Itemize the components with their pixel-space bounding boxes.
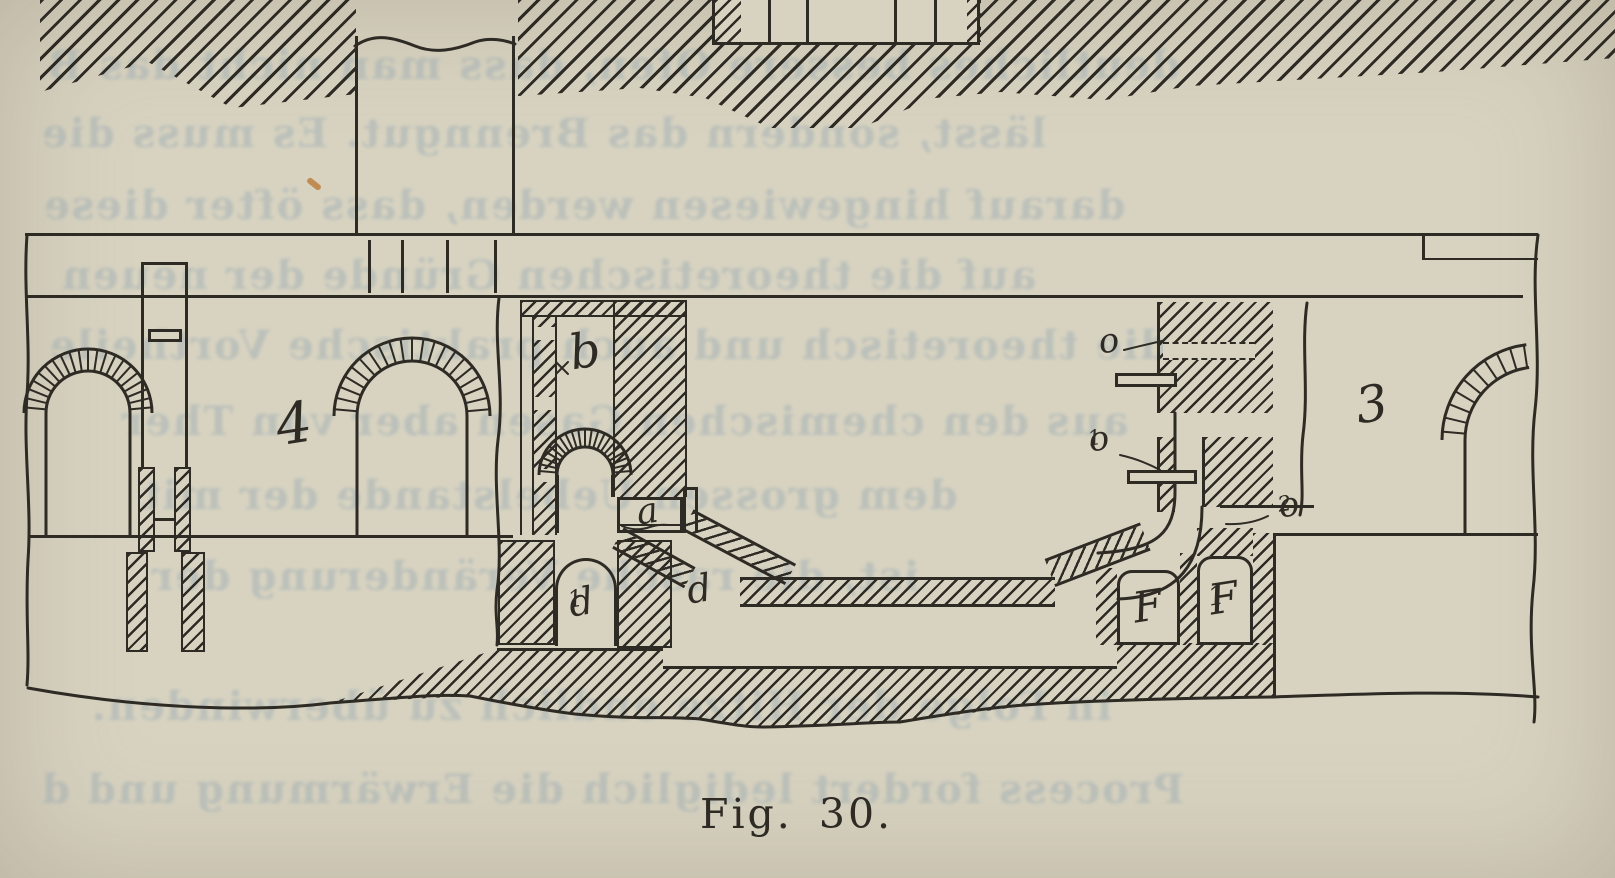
cover-block-joint [894,0,897,42]
showthrough-line: lässt, sondern das Brenngut. Es muss die [40,110,1046,157]
cover-block-hatch-left [715,0,741,42]
checker-gap [534,327,555,340]
kiln-slab-bottom-line [25,295,1523,298]
slide-wall-strip [1157,484,1175,512]
chimney-shaft [355,36,515,233]
collar-joint [446,240,449,293]
chimney-base-collar [368,240,497,293]
collar-joint [401,240,404,293]
showthrough-line: auf die theoretischen Gründe der neuen [60,252,1036,299]
slide-o2-slot-top-line [1220,505,1314,508]
b-channel-jamb [611,475,613,497]
scanned-book-page: deutliches bessere Ofen, dass man nicht … [0,0,1615,878]
label-b-tick [556,362,568,374]
label-o2-leader [1226,516,1268,524]
chamber3-floor-line [1273,533,1538,536]
chamber4-floor-line [30,535,513,538]
probe-tube-cap [141,262,188,265]
probe-tube-damper-slot [148,329,182,342]
arch-chamber3-right [1442,345,1529,533]
arch-chamber4-right [334,338,490,535]
checker-gap [534,469,555,482]
kiln-top-line [25,233,1538,236]
cover-block-joint [806,0,809,42]
figure-caption: Fig. 30. [700,790,893,838]
checker-gap [534,397,555,410]
hatch-over-f1 [1197,528,1253,556]
slide-block-lower [1202,437,1273,507]
probe-tube-lower-wall [138,467,155,552]
cover-block-joint [768,0,771,42]
left-break-line [26,235,29,685]
slide-wall-strip [1157,437,1175,470]
slide-o-slot [1163,342,1255,360]
label-o1-leader [1120,455,1160,470]
right-break-line [1531,235,1538,722]
probe-fork-prong [181,552,205,652]
probe-tube-crossbar [155,518,175,521]
cover-block-hatch-right [967,0,981,42]
probe-fork-prong [126,552,148,652]
showthrough-line: darauf hingewiesen werden, dass öfter di… [42,182,1125,229]
b-channel-jamb [557,475,559,533]
linework-overlay [0,0,1615,878]
ink-stain [306,177,322,192]
slab-step-vertical [1422,233,1425,260]
probe-tube-wall [141,262,144,469]
pier-left-of-d1 [498,540,555,645]
ground-cover-block [712,0,980,45]
slide-o-plate [1115,373,1177,387]
b-pillar-hatch [613,300,687,497]
structure-right-edge [1273,533,1276,697]
pillar-between-f-f1 [1180,553,1197,645]
slide-o1-plate [1127,470,1197,484]
chamber3-left-break-line [1300,303,1307,515]
b-checker-column [532,317,557,535]
cover-block-joint [934,0,937,42]
probe-tube-lower-wall [174,467,191,552]
wall-left-of-f [1096,568,1117,645]
flue-roof-band [740,577,1055,607]
showthrough-line: Process fordert lediglich die Erwärmung … [40,766,1184,813]
pillar-right-of-f1 [1253,533,1273,645]
b-structure-outer-wall-line [520,300,522,535]
arch-chamber4-left [24,349,152,535]
probe-tube-wall [185,262,188,469]
showthrough-line: die theoretisch und auch praktische Vort… [48,322,1168,369]
slab-step-ledge [1422,258,1538,260]
